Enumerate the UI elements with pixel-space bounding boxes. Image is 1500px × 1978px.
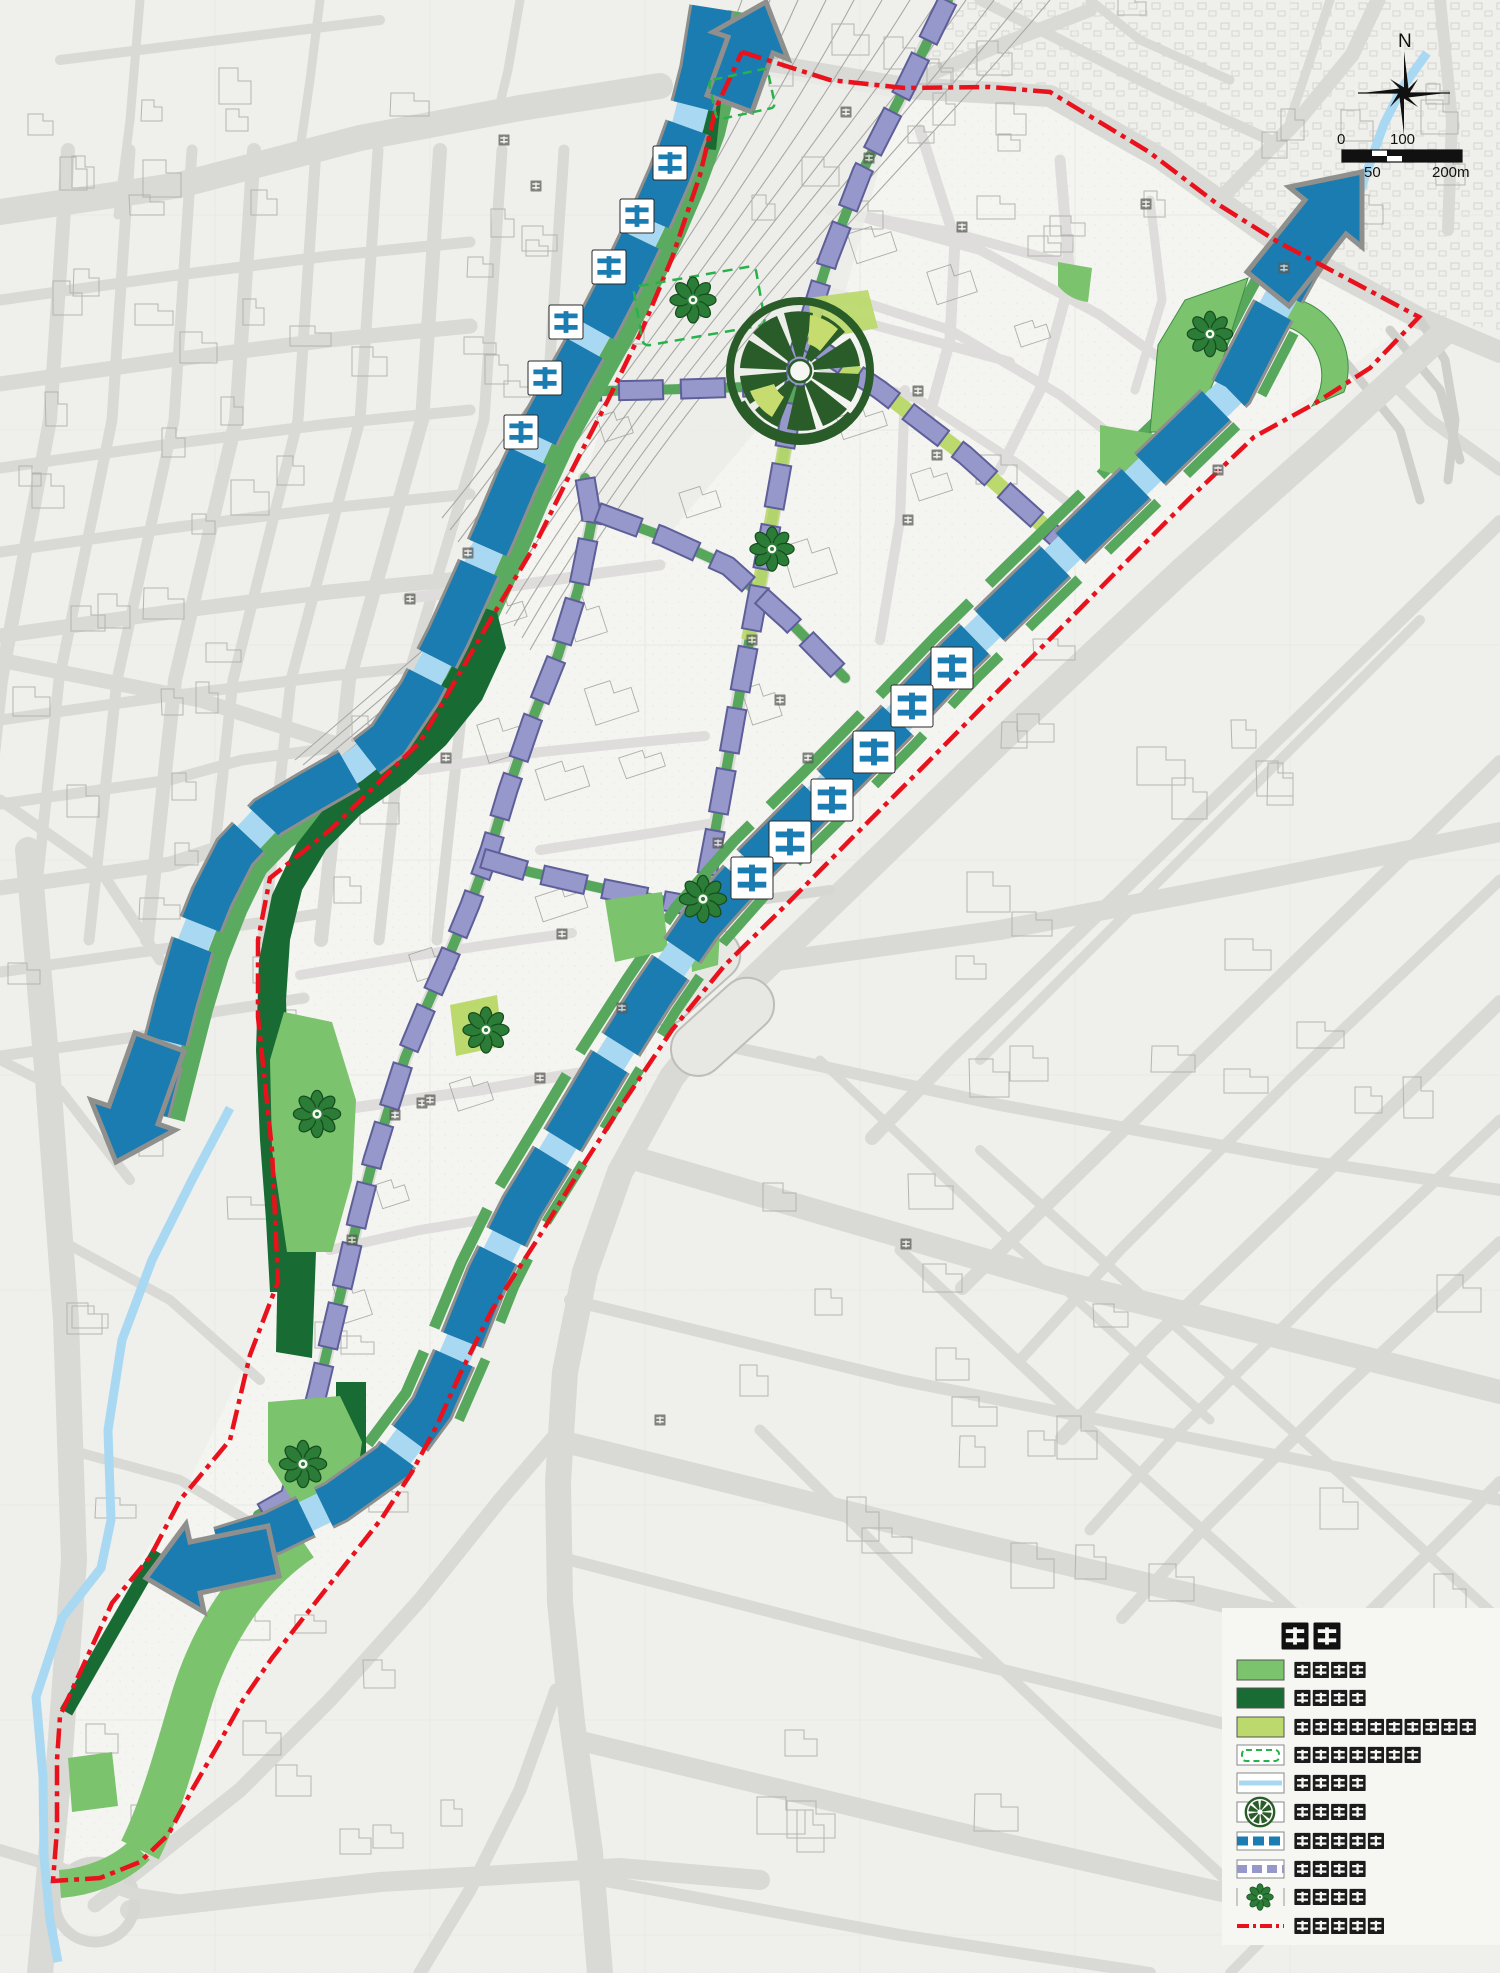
svg-text:N: N	[1398, 31, 1412, 52]
svg-text:100: 100	[1390, 131, 1415, 148]
svg-text:200m: 200m	[1432, 164, 1470, 181]
svg-text:0: 0	[1337, 131, 1345, 148]
svg-text:50: 50	[1364, 164, 1381, 181]
